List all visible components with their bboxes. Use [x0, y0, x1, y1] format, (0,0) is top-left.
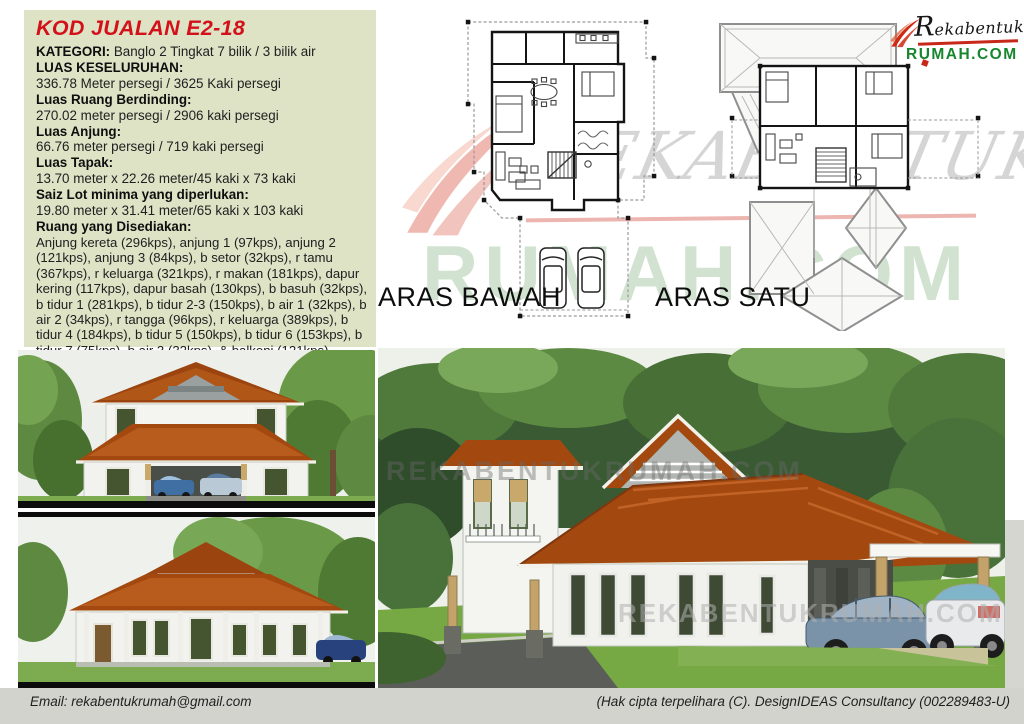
- right-margin: [1005, 520, 1024, 688]
- copyright-text: (Hak cipta terpelihara (C). DesignIDEAS …: [597, 694, 1010, 709]
- walled-area-value: 270.02 meter persegi / 2906 kaki persegi: [36, 108, 368, 124]
- lot-size-label: Saiz Lot minima yang diperlukan:: [36, 187, 368, 203]
- perspective-render: [378, 348, 1005, 688]
- side-elevation-render: [18, 512, 375, 688]
- render-watermark-top: REKABENTUKRUMAH.COM: [386, 456, 803, 487]
- logo-red-dot: [921, 59, 929, 67]
- porch-area-value: 66.76 meter persegi / 719 kaki persegi: [36, 139, 368, 155]
- lot-size-value: 19.80 meter x 31.41 meter/65 kaki x 103 …: [36, 203, 368, 219]
- info-panel: KOD JUALAN E2-18 KATEGORI: Banglo 2 Ting…: [24, 10, 376, 347]
- total-area-label: LUAS KESELURUHAN:: [36, 60, 368, 76]
- contact-email: Email: rekabentukrumah@gmail.com: [30, 694, 252, 709]
- category-line: KATEGORI: Banglo 2 Tingkat 7 bilik / 3 b…: [36, 44, 368, 60]
- floor-plans-area: REKABENTUK RUMAH.COM: [376, 0, 1024, 347]
- render-watermark-bottom: REKABENTUKRUMAH.COM: [618, 598, 1003, 629]
- footprint-value: 13.70 meter x 22.26 meter/45 kaki x 73 k…: [36, 171, 368, 187]
- logo-script-text: Rekabentuk: [913, 8, 1024, 43]
- footprint-label: Luas Tapak:: [36, 155, 368, 171]
- total-area-value: 336.78 Meter persegi / 3625 Kaki persegi: [36, 76, 368, 92]
- company-logo: Rekabentuk RUMAH.COM: [888, 10, 1022, 68]
- ground-floor-label: ARAS BAWAH: [378, 282, 561, 313]
- footer-bar: Email: rekabentukrumah@gmail.com (Hak ci…: [0, 688, 1024, 724]
- catalog-page: KOD JUALAN E2-18 KATEGORI: Banglo 2 Ting…: [0, 0, 1024, 724]
- walled-area-label: Luas Ruang Berdinding:: [36, 92, 368, 108]
- front-elevation-render: [18, 350, 375, 508]
- spaces-label: Ruang yang Disediakan:: [36, 219, 368, 235]
- spaces-list: Anjung kereta (296kps), anjung 1 (97kps)…: [36, 235, 368, 358]
- porch-area-label: Luas Anjung:: [36, 124, 368, 140]
- sale-code-title: KOD JUALAN E2-18: [36, 16, 368, 41]
- first-floor-label: ARAS SATU: [655, 282, 811, 313]
